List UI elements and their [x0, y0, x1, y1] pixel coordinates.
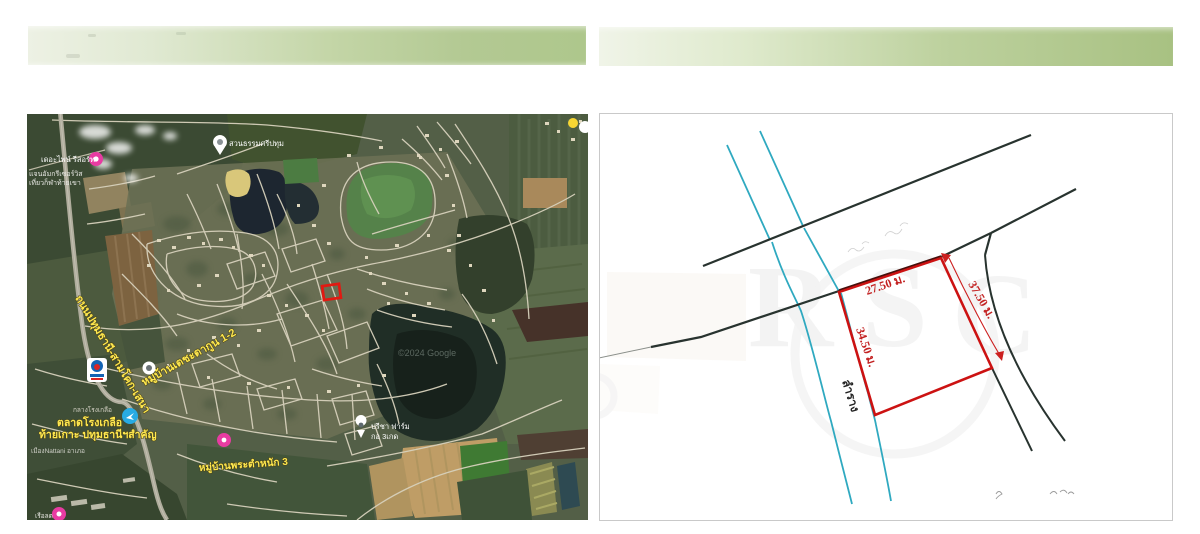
svg-text:เดอะไพน์ รีสอร์ท: เดอะไพน์ รีสอร์ท [41, 155, 95, 164]
svg-text:ปรีชา ฟาร์ม: ปรีชา ฟาร์ม [371, 422, 410, 431]
svg-text:เมืองNattani อาเภอ: เมืองNattani อาเภอ [31, 447, 85, 455]
svg-text:สวนธรรมศรีปทุม: สวนธรรมศรีปทุม [229, 139, 284, 148]
svg-text:กอ 3เกด: กอ 3เกด [371, 432, 398, 441]
svg-text:เรือลต: เรือลต [35, 512, 53, 520]
svg-text:ตลาดโรงเกลือ: ตลาดโรงเกลือ [57, 416, 122, 429]
svg-text:ท้ายเกาะ ปทุมธานีฯสำคัญ: ท้ายเกาะ ปทุมธานีฯสำคัญ [39, 428, 157, 442]
svg-text:©2024 Google: ©2024 Google [398, 348, 456, 358]
svg-text:เที่ยวก็ฬาท้ายเขา: เที่ยวก็ฬาท้ายเขา [29, 178, 81, 187]
svg-text:กลางโรงเกลือ: กลางโรงเกลือ [73, 406, 112, 414]
svg-text:ลำราง: ลำราง [839, 378, 862, 414]
svg-text:แจนอัมกรีเซอร์วิส: แจนอัมกรีเซอร์วิส [29, 170, 83, 178]
